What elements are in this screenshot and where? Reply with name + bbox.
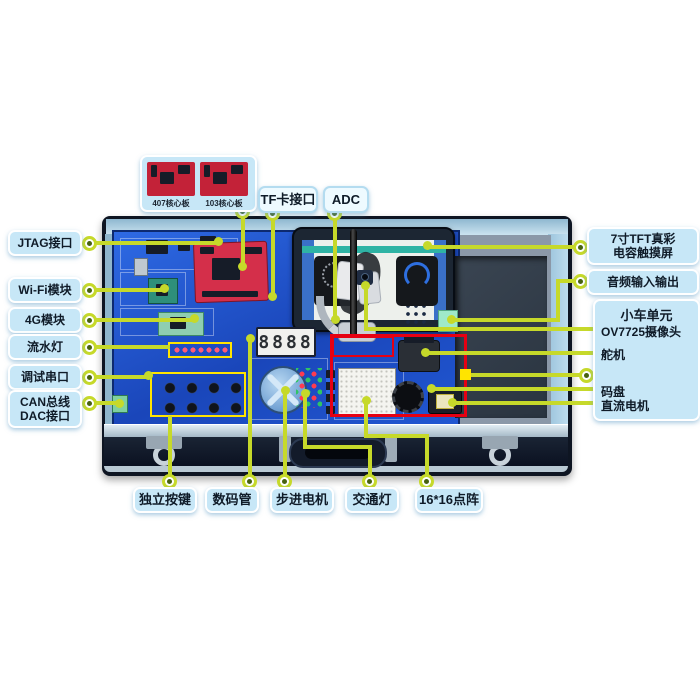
mini-chip [178, 165, 190, 174]
core-board-407-caption: 407核心板 [147, 198, 195, 209]
label-dc-motor: 直流电机 [601, 397, 649, 414]
label-traffic-light: 交通灯 [345, 487, 399, 513]
label-jtag: JTAG接口 [8, 230, 82, 256]
label-adc: ADC [323, 186, 369, 213]
callout-marker [82, 370, 97, 385]
tft-line2: 电容触摸屏 [611, 246, 676, 260]
callout-marker [82, 313, 97, 328]
callout-line [454, 318, 558, 322]
pen-rod [350, 229, 357, 337]
callout-line [303, 445, 372, 449]
callout-line [470, 373, 580, 377]
callout-endpoint [144, 371, 153, 380]
label-4g: 4G模块 [8, 307, 82, 333]
callout-endpoint [301, 389, 310, 398]
callout-endpoint [361, 281, 370, 290]
label-dot-matrix: 16*16点阵 [415, 487, 483, 513]
label-seven-seg: 数码管 [205, 487, 259, 513]
mini-chip [151, 165, 157, 177]
callout-line [248, 340, 252, 478]
pin-header [202, 291, 258, 297]
callout-line [241, 218, 245, 268]
callout-endpoint [362, 396, 371, 405]
label-flow-led: 流水灯 [8, 334, 82, 360]
callout-endpoint [214, 237, 223, 246]
callout-line [271, 219, 275, 299]
callout-line [425, 436, 429, 478]
callout-line [368, 327, 595, 331]
label-tft: 7寸TFT真彩电容触摸屏 [587, 227, 699, 265]
callout-line [364, 286, 368, 331]
callout-line [364, 434, 429, 438]
label-tf-card: TF卡接口 [258, 186, 318, 213]
callout-line [433, 387, 595, 391]
callout-line [426, 351, 595, 355]
callout-endpoint [421, 348, 430, 357]
callout-line [168, 416, 172, 478]
label-servo: 舵机 [601, 346, 625, 363]
core-board-103-caption: 103核心板 [200, 198, 248, 209]
can-line2: DAC接口 [20, 409, 70, 423]
callout-line [303, 395, 307, 447]
callout-endpoint [423, 241, 432, 250]
mini-chip [160, 172, 174, 184]
product-diagram: 8888 407核心板 1 [0, 0, 700, 700]
callout-marker [573, 274, 588, 289]
callout-endpoint [246, 334, 255, 343]
callout-line [96, 288, 164, 292]
callout-line [430, 245, 576, 249]
gauge-right-arc [404, 262, 430, 288]
latch-plate-right [482, 436, 518, 449]
label-can-dac: CAN总线DAC接口 [8, 390, 82, 428]
callout-endpoint [238, 262, 247, 271]
callout-marker [82, 396, 97, 411]
callout-endpoint [281, 386, 290, 395]
traffic-light-leds [296, 368, 322, 408]
callout-marker [579, 368, 594, 383]
callout-marker [573, 240, 588, 255]
mini-chip [213, 172, 227, 184]
callout-line [96, 375, 148, 379]
callout-line [96, 318, 194, 322]
callout-endpoint [160, 284, 169, 293]
latch-plate-left [146, 436, 182, 449]
callout-endpoint [448, 398, 457, 407]
label-debug-serial: 调试串口 [8, 364, 82, 390]
callout-endpoint [331, 315, 340, 324]
callout-marker [82, 340, 97, 355]
seven-segment-display: 8888 [256, 327, 316, 357]
keypad-buttons [155, 376, 243, 414]
callout-endpoint [190, 314, 199, 323]
callout-marker [82, 283, 97, 298]
callout-line [364, 402, 368, 436]
label-stepper: 步进电机 [270, 487, 334, 513]
callout-endpoint [115, 399, 124, 408]
foam-pocket [455, 256, 547, 418]
pin-header [244, 247, 262, 254]
tft-line1: 7寸TFT真彩 [611, 232, 676, 246]
callout-square-marker [460, 369, 471, 380]
flow-led-bar [172, 347, 229, 353]
callout-line [453, 401, 595, 405]
can-line1: CAN总线 [20, 395, 70, 409]
callout-line [96, 345, 170, 349]
callout-line [556, 279, 560, 322]
flex-connector-outline [332, 336, 394, 357]
callout-endpoint [268, 292, 277, 301]
label-keys: 独立按键 [133, 487, 197, 513]
callout-line [333, 219, 337, 321]
pin-header [200, 247, 214, 254]
callout-endpoint [447, 315, 456, 324]
callout-line [283, 392, 287, 478]
label-wifi: Wi-Fi模块 [8, 277, 82, 303]
mini-chip [204, 165, 210, 177]
power-connector [134, 258, 148, 276]
label-audio: 音频输入输出 [587, 269, 699, 295]
car-unit-title: 小车单元 [593, 305, 700, 324]
callout-marker [82, 236, 97, 251]
camera-lens [361, 273, 369, 281]
mcu-chip [212, 258, 240, 280]
label-camera: OV7725摄像头 [601, 323, 681, 340]
mini-chip [231, 165, 243, 174]
callout-endpoint [427, 384, 436, 393]
callout-line [96, 241, 218, 245]
